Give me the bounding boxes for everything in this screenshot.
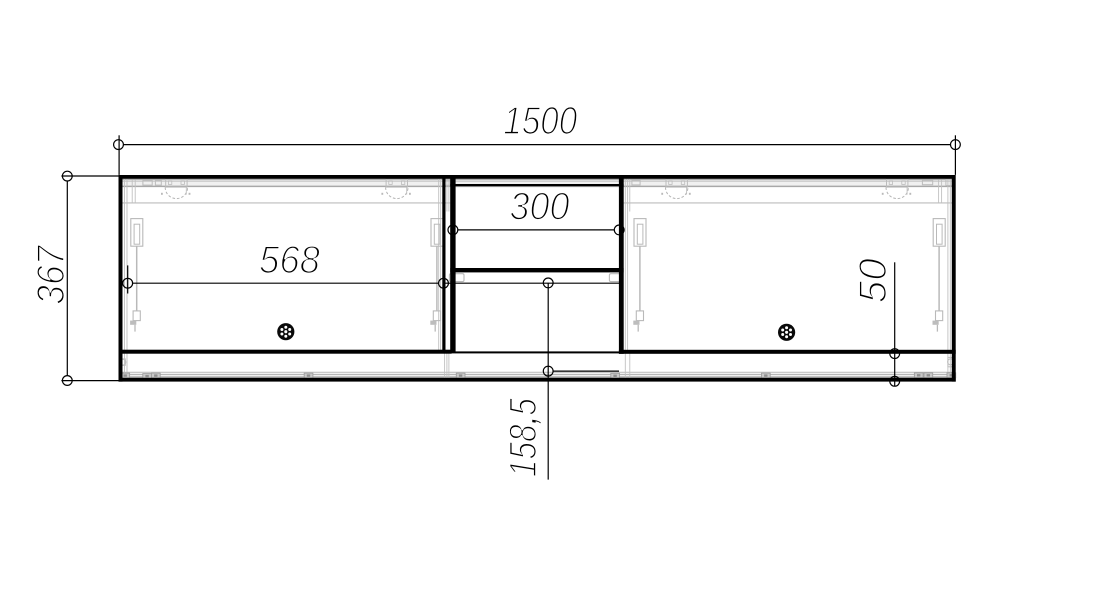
- svg-text:300: 300: [510, 185, 570, 228]
- svg-text:367: 367: [30, 245, 73, 305]
- svg-text:158,5: 158,5: [502, 398, 545, 477]
- svg-text:1500: 1500: [503, 100, 577, 143]
- svg-text:50: 50: [852, 258, 895, 303]
- svg-text:568: 568: [259, 239, 320, 282]
